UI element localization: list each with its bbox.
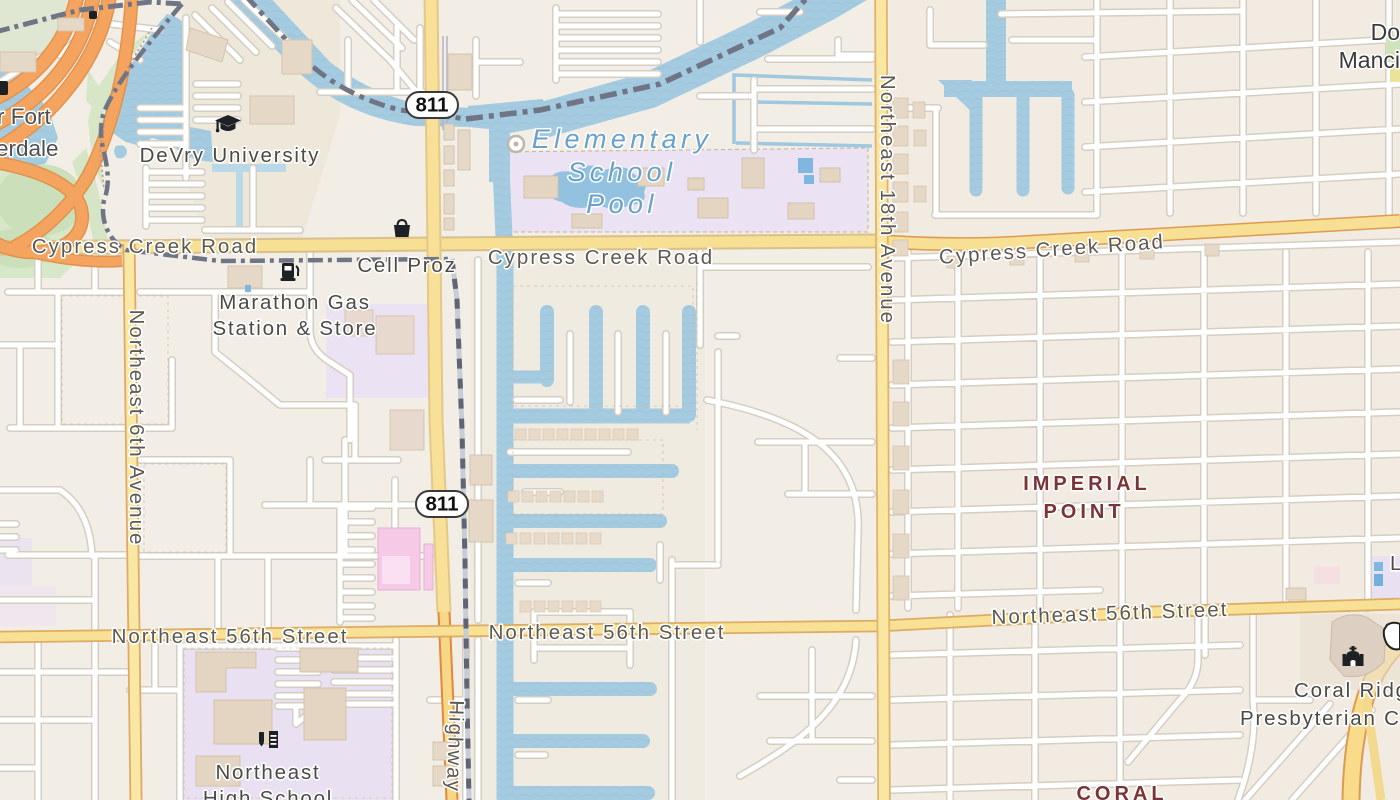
svg-text:Pool: Pool xyxy=(586,189,658,219)
svg-text:DeVry University: DeVry University xyxy=(140,144,321,167)
svg-text:811: 811 xyxy=(425,493,458,516)
svg-text:Cell Proz: Cell Proz xyxy=(357,254,456,277)
svg-text:High School: High School xyxy=(203,787,333,800)
svg-text:Elementary: Elementary xyxy=(532,124,713,154)
svg-text:Marathon Gas: Marathon Gas xyxy=(219,291,371,314)
svg-text:School: School xyxy=(568,157,677,187)
svg-text:Northeast 18th Avenue: Northeast 18th Avenue xyxy=(876,75,899,325)
svg-text:Highway: Highway xyxy=(442,700,468,793)
svg-text:Cypress Creek Road: Cypress Creek Road xyxy=(32,235,258,258)
svg-text:IMPERIAL: IMPERIAL xyxy=(1023,473,1151,495)
svg-text:Coral Ridg: Coral Ridg xyxy=(1294,679,1400,702)
svg-text:Northeast: Northeast xyxy=(215,761,320,784)
svg-text:Northeast 56th Street: Northeast 56th Street xyxy=(489,621,726,644)
svg-text:811: 811 xyxy=(415,94,448,117)
svg-text:Do: Do xyxy=(1371,19,1400,45)
svg-text:L: L xyxy=(1390,552,1400,575)
svg-text:r Fort: r Fort xyxy=(0,104,51,129)
svg-text:Presbyterian Ch: Presbyterian Ch xyxy=(1240,707,1400,730)
svg-text:Northeast 56th Street: Northeast 56th Street xyxy=(112,625,349,648)
svg-text:Northeast 6th Avenue: Northeast 6th Avenue xyxy=(125,310,148,547)
svg-text:CORAL: CORAL xyxy=(1076,783,1167,800)
svg-text:POINT: POINT xyxy=(1043,501,1124,523)
svg-text:Cypress Creek Road: Cypress Creek Road xyxy=(488,246,714,269)
svg-text:Manci: Manci xyxy=(1339,47,1400,73)
svg-text:erdale: erdale xyxy=(0,136,59,161)
svg-text:Station & Store: Station & Store xyxy=(213,317,378,340)
